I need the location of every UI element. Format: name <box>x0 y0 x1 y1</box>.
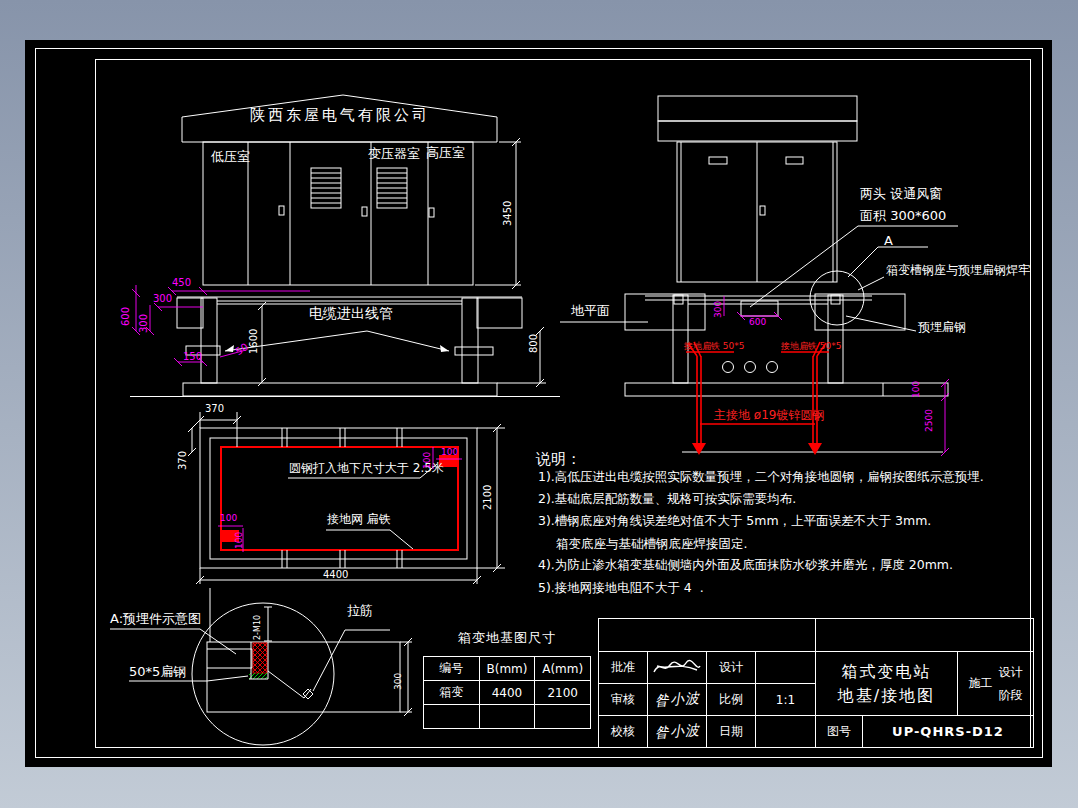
dim-800v: 800 <box>529 334 539 353</box>
label-ground-net: 接地网 扁铁 <box>327 513 391 525</box>
room-transformer: 变压器室 <box>368 147 420 160</box>
checker-signature: 昝小波 <box>647 715 707 748</box>
note-5: 5).接地网接地电阻不大于 4 . <box>538 582 704 595</box>
dim-table-header-id: 编号 <box>424 657 480 681</box>
dim-table-header-b: B(mm) <box>479 657 535 681</box>
dim-100d: 100 <box>235 532 244 549</box>
title-block-blank-cell <box>815 618 1034 652</box>
dim-370t: 370 <box>205 404 224 414</box>
note-3: 3).槽钢底座对角线误差绝对值不大于 5mm，上平面误差不大于 3mm. <box>538 515 931 528</box>
title-block-blank-cell <box>598 618 816 652</box>
label-round-steel-depth: 圆钢打入地下尺寸大于 2.5米 <box>289 462 444 474</box>
dim-100c: 100 <box>220 514 237 523</box>
dim-100a: 100 <box>441 448 458 457</box>
foundation-plan <box>188 412 505 584</box>
approver-signature <box>647 651 707 684</box>
design-value <box>755 651 816 684</box>
note-1: 1).高低压进出电缆按照实际数量预埋，二个对角接地圆钢，扁钢按图纸示意预埋. <box>538 471 984 484</box>
dim-100b: 100 <box>423 452 432 469</box>
scale-value: 1:1 <box>755 683 816 716</box>
notes-title: 说明： <box>536 452 581 467</box>
check-label: 校核 <box>598 715 648 748</box>
dim-300d: 300 <box>394 673 403 690</box>
label-vent-window: 两头 设通风窗 <box>860 187 942 200</box>
label-flat-steel-50x5: 50*5扁钢 <box>129 665 186 678</box>
dim-4400: 4400 <box>323 570 348 580</box>
dimension-table-title: 箱变地基图尺寸 <box>423 629 591 647</box>
dim-table-header-a: A(mm) <box>535 657 591 681</box>
label-channel-weld: 箱变槽钢座与预埋扁钢焊牢 <box>886 264 1030 276</box>
label-detail-a-ref: A <box>884 234 893 247</box>
review-label: 审核 <box>598 683 648 716</box>
stage-label-line2: 阶段 <box>999 687 1023 704</box>
dim-3450: 3450 <box>503 201 513 226</box>
drawing-no-value: UP-QHRS-D12 <box>862 715 1034 748</box>
stage-value: 施工 <box>969 675 993 692</box>
label-ground-flat-iron-left: 接地扁铁 50*5 <box>684 342 745 351</box>
dimension-table: 箱变地基图尺寸 编号 B(mm) A(mm) 箱变 4400 2100 <box>423 629 591 729</box>
label-tie-bar: 拉筋 <box>347 604 373 617</box>
label-vent-area: 面积 300*600 <box>860 209 946 222</box>
dim-370l: 370 <box>178 451 188 470</box>
dim-2m10: 2-M10 <box>254 615 262 640</box>
sheet-title-line2: 地基/接地图 <box>838 684 935 708</box>
dim-table-cell <box>424 705 480 729</box>
stage-label-line1: 设计 <box>999 664 1023 681</box>
label-detail-a-title: A:预埋件示意图 <box>110 612 201 625</box>
dim-2100: 2100 <box>483 485 493 510</box>
room-high-voltage: 高压室 <box>426 146 465 159</box>
scale-label: 比例 <box>706 683 756 716</box>
dim-600: 600 <box>121 307 131 326</box>
label-ground-flat-iron-right: 接地扁铁 50*5 <box>781 342 842 351</box>
approver-signature-scribble <box>651 657 703 679</box>
dim-100r: 100 <box>912 381 921 398</box>
company-name: 陕西东屋电气有限公司 <box>250 108 430 123</box>
note-3b: 箱变底座与基础槽钢底座焊接固定. <box>556 538 747 551</box>
dim-300: 300 <box>153 294 172 304</box>
sheet-title-line1: 箱式变电站 <box>842 660 932 684</box>
title-block: 批准 设计 审核 昝小波 比例 1:1 校核 昝小波 日期 箱式变电站 地基/接… <box>598 618 1034 748</box>
dim-1600: 1600 <box>249 329 259 354</box>
dim-table-cell <box>535 705 591 729</box>
room-low-voltage: 低压室 <box>211 150 250 163</box>
label-main-ground: 主接地 ø19镀锌圆钢 <box>714 409 824 421</box>
approve-label: 批准 <box>598 651 648 684</box>
note-4: 4).为防止渗水箱变基础侧墙内外面及底面抹防水砂浆并磨光，厚度 20mm. <box>538 559 953 572</box>
note-2: 2).基础底层配筋数量、规格可按实际需要均布. <box>538 493 796 506</box>
design-label: 设计 <box>706 651 756 684</box>
date-label: 日期 <box>706 715 756 748</box>
reviewer-signature: 昝小波 <box>647 683 707 716</box>
stage-cell: 施工 设计 阶段 <box>957 651 1034 716</box>
dim-2500: 2500 <box>925 409 934 432</box>
dim-450: 450 <box>172 278 191 288</box>
label-embedded-flat-steel: 预埋扁钢 <box>918 321 966 333</box>
date-value <box>755 715 816 748</box>
cad-viewer-window: { "drawing": { "company": "陕西东屋电气有限公司", … <box>0 0 1078 808</box>
dim-table-cell: 4400 <box>479 681 535 705</box>
sheet-title: 箱式变电站 地基/接地图 <box>815 651 958 716</box>
drawing-no-label: 图号 <box>815 715 863 748</box>
dim-150: 150 <box>183 352 202 362</box>
label-ground-level: 地平面 <box>571 304 610 317</box>
dim-300c: 300 <box>714 301 723 318</box>
dim-table-cell <box>479 705 535 729</box>
dim-table-cell: 2100 <box>535 681 591 705</box>
dim-600b: 600 <box>749 318 766 327</box>
dim-300b: 300 <box>139 314 149 333</box>
label-cable-conduit: 电缆进出线管 <box>309 306 393 320</box>
dim-table-cell: 箱变 <box>424 681 480 705</box>
